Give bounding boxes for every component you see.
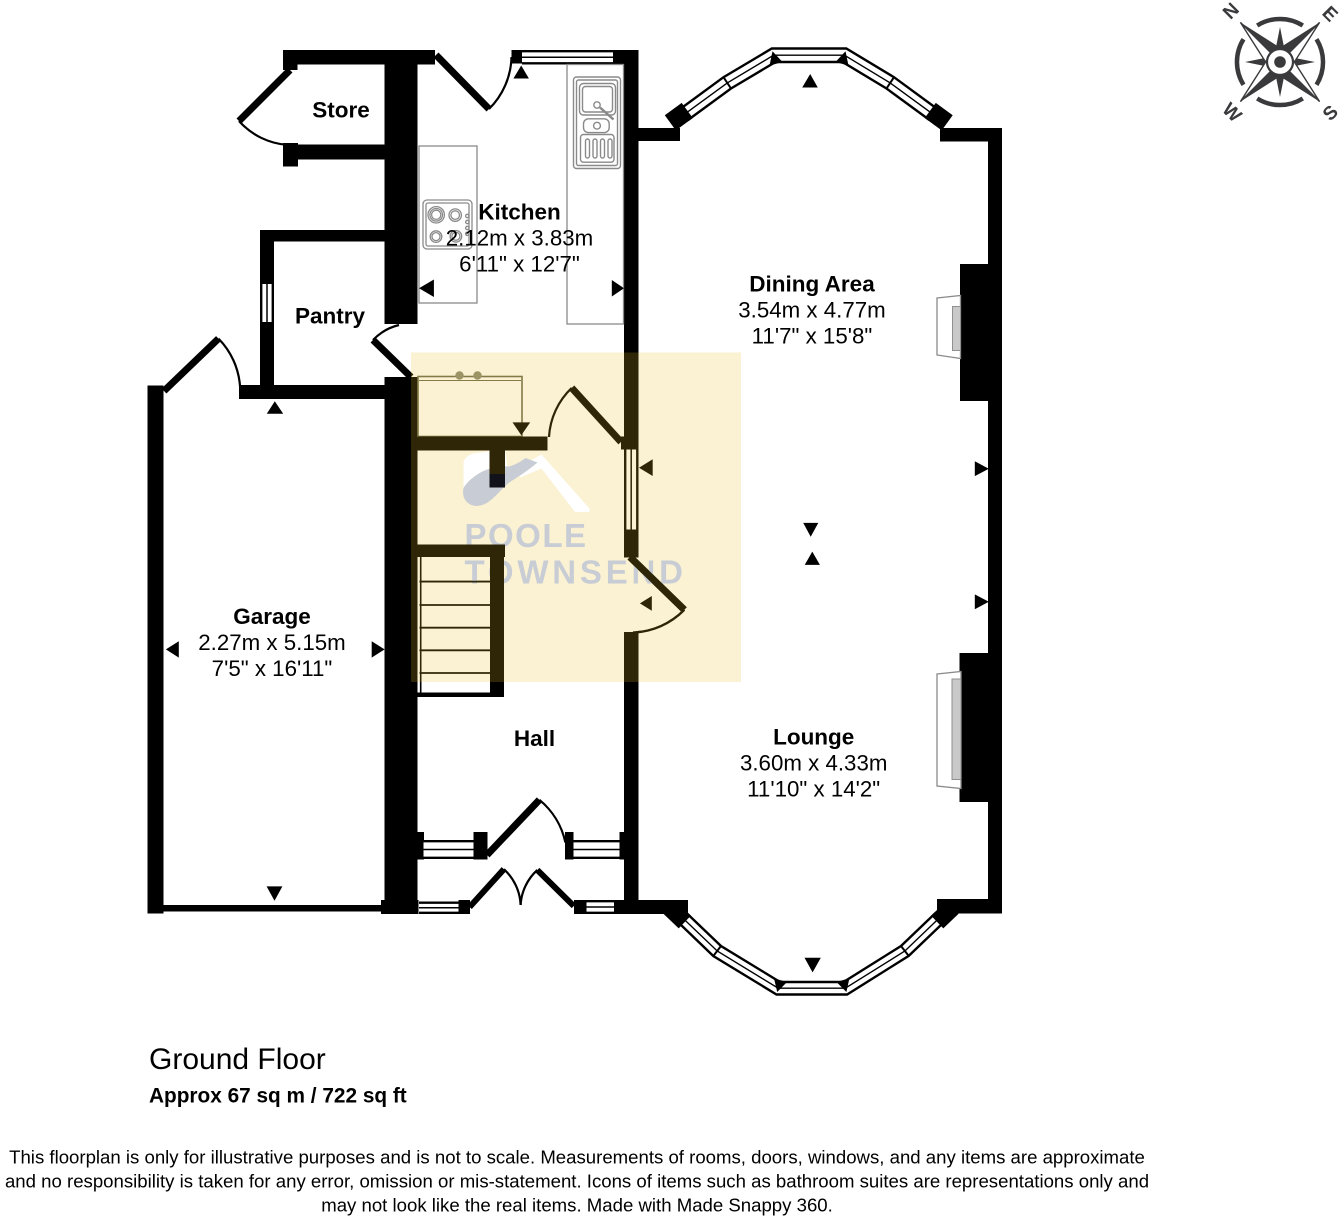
- svg-text:Pantry: Pantry: [295, 304, 366, 329]
- svg-text:2.27m x 5.15m: 2.27m x 5.15m: [198, 630, 345, 655]
- svg-text:11'10" x 14'2": 11'10" x 14'2": [747, 777, 880, 802]
- svg-text:Kitchen: Kitchen: [478, 200, 561, 225]
- svg-text:Lounge: Lounge: [773, 725, 854, 750]
- svg-text:Dining Area: Dining Area: [749, 272, 875, 297]
- svg-text:Store: Store: [312, 98, 370, 123]
- svg-text:Ground Floor: Ground Floor: [149, 1043, 326, 1076]
- svg-text:Garage: Garage: [233, 604, 311, 629]
- svg-text:Approx 67 sq m / 722 sq ft: Approx 67 sq m / 722 sq ft: [149, 1085, 407, 1108]
- svg-text:and no responsibility is taken: and no responsibility is taken for any e…: [5, 1171, 1149, 1192]
- svg-text:6'11" x 12'7": 6'11" x 12'7": [459, 252, 580, 277]
- svg-text:Hall: Hall: [514, 726, 555, 751]
- svg-text:may not look like the real ite: may not look like the real items. Made w…: [321, 1195, 833, 1216]
- svg-text:2.12m x 3.83m: 2.12m x 3.83m: [446, 226, 593, 251]
- svg-text:This floorplan is only for ill: This floorplan is only for illustrative …: [9, 1147, 1145, 1168]
- svg-text:3.60m x 4.33m: 3.60m x 4.33m: [740, 751, 887, 776]
- svg-text:3.54m x 4.77m: 3.54m x 4.77m: [738, 298, 885, 323]
- svg-text:11'7" x 15'8": 11'7" x 15'8": [752, 324, 873, 349]
- svg-text:7'5" x 16'11": 7'5" x 16'11": [212, 656, 333, 681]
